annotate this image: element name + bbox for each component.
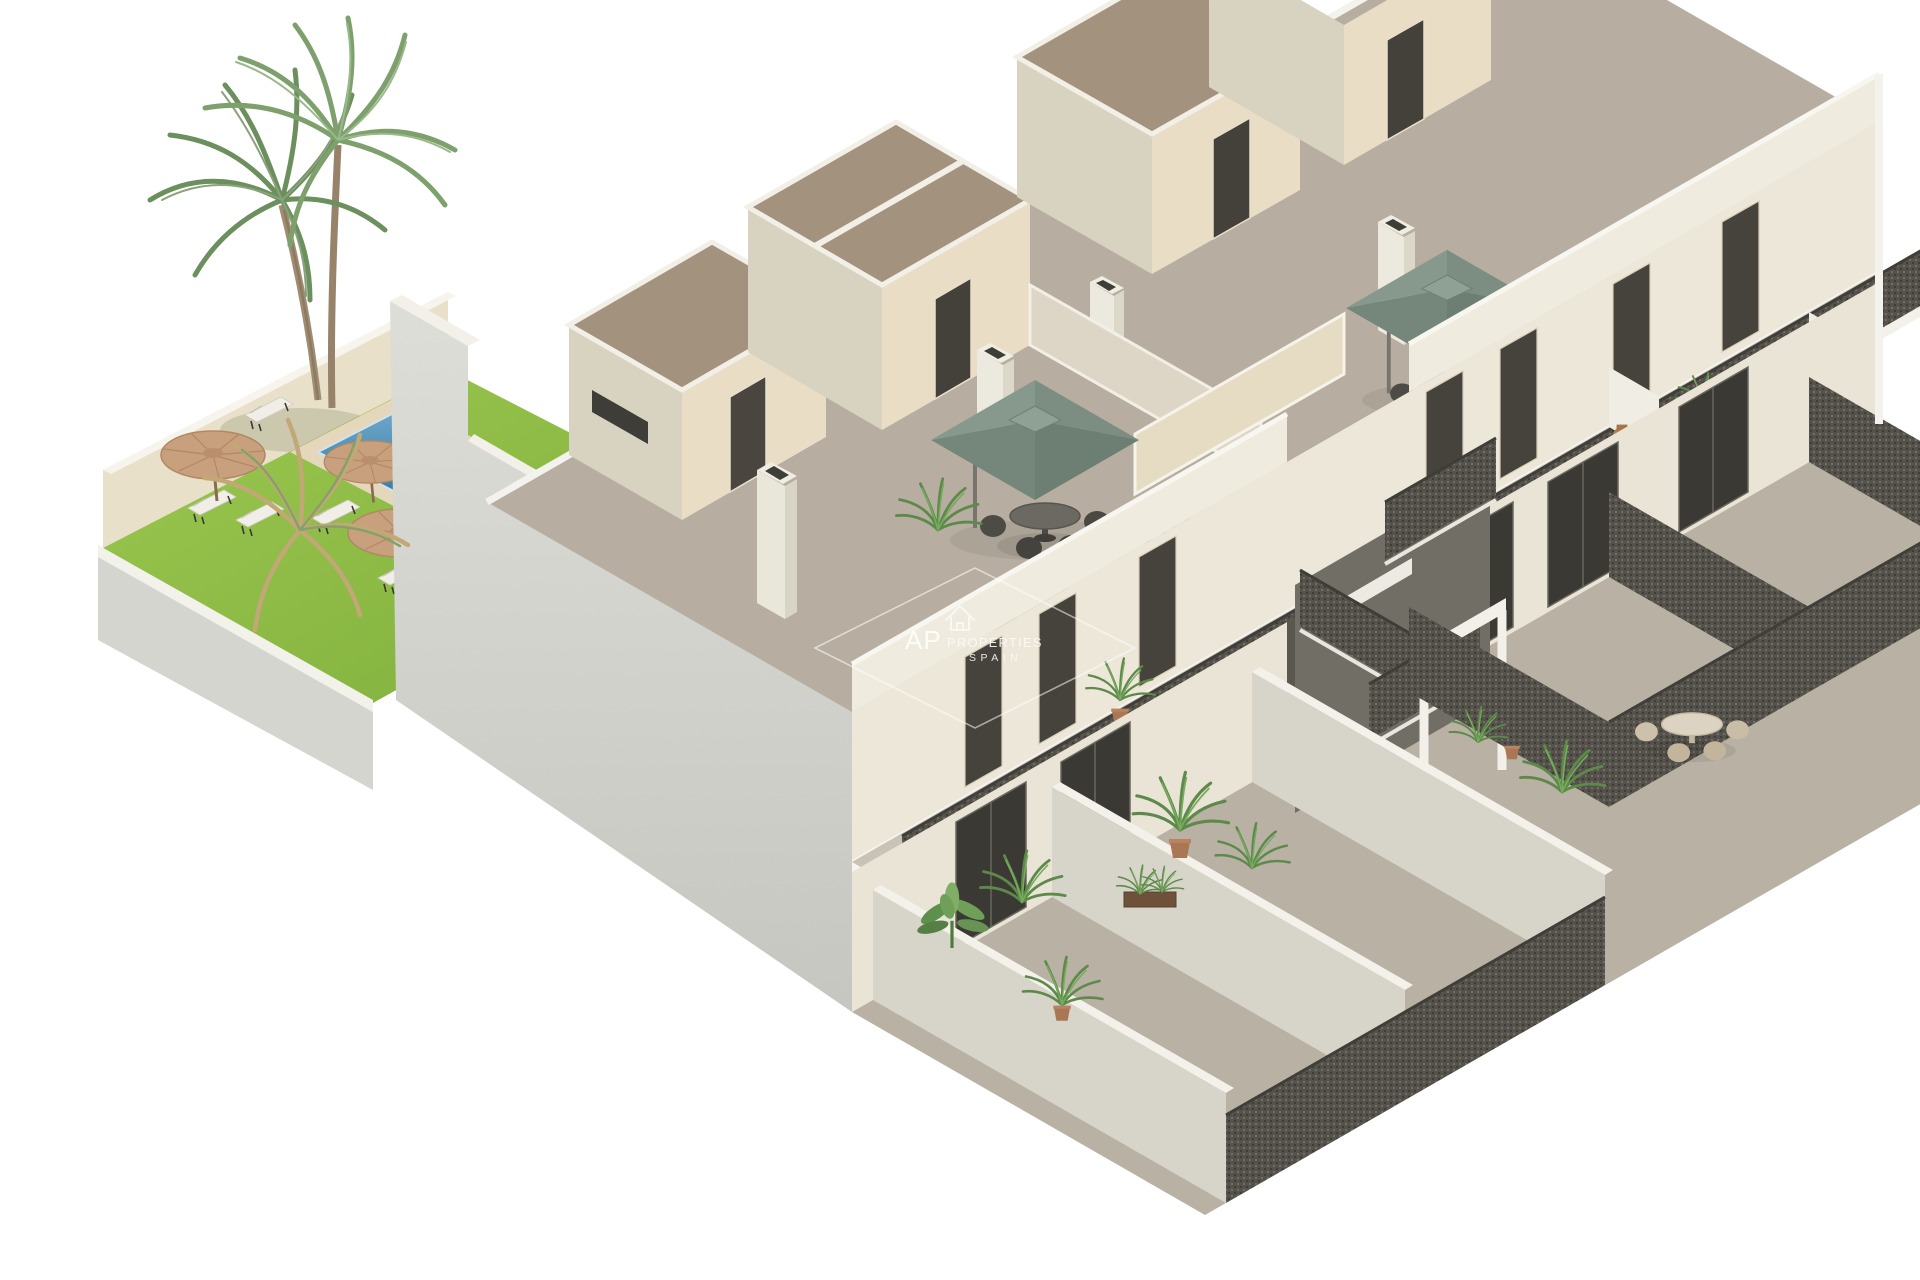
- bulkhead-door: [1387, 19, 1424, 140]
- building-end-trim: [1875, 74, 1883, 424]
- watermark-brand-word: PROPERTIES: [947, 635, 1043, 650]
- property-3d-render: AP PROPERTIES SPAIN: [0, 0, 1920, 1280]
- render-canvas: AP PROPERTIES SPAIN: [0, 0, 1920, 1280]
- bulkhead-door: [1213, 118, 1250, 239]
- bulkhead-door: [935, 278, 971, 399]
- palm-crown: [150, 18, 455, 300]
- watermark-country: SPAIN: [969, 652, 1022, 664]
- watermark-brand-initials: AP: [905, 625, 942, 655]
- chimney: [757, 462, 797, 619]
- apartment-building: [487, 0, 1920, 1215]
